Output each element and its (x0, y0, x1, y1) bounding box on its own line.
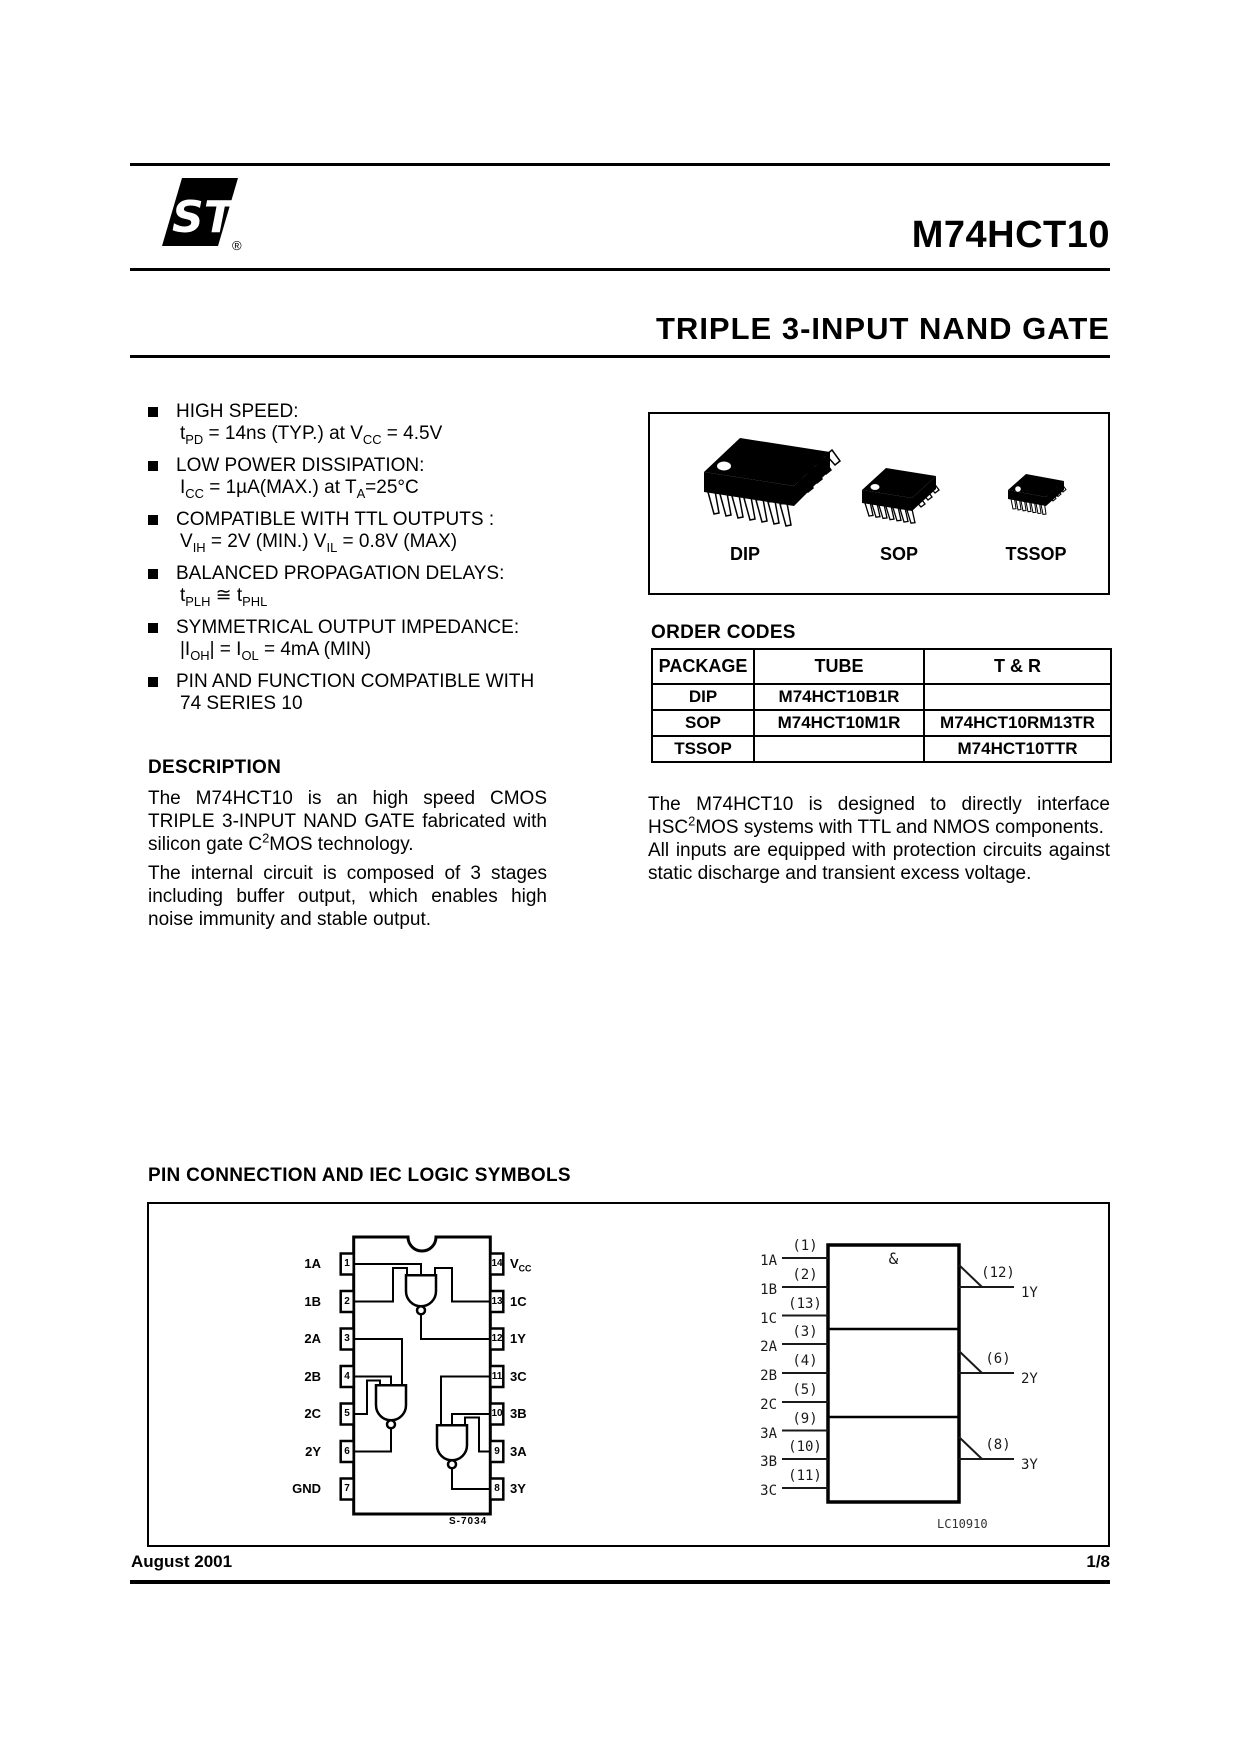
iec-output-pin: (6) (971, 1351, 1025, 1367)
iec-input-name: 1A (715, 1253, 777, 1269)
cell-tr: M74HCT10RM13TR (924, 710, 1111, 736)
col-header-package: PACKAGE (652, 649, 754, 684)
sop-package-label: SOP (854, 544, 944, 565)
iec-output-name: 3Y (1021, 1457, 1038, 1473)
dip-pin-number: 13 (490, 1296, 504, 1308)
iec-input-name: 1C (715, 1311, 777, 1327)
dip-package-image (678, 428, 848, 543)
description-paragraph: The internal circuit is composed of 3 st… (148, 862, 547, 931)
bullet-square-icon (148, 677, 158, 687)
feature-title: COMPATIBLE WITH TTL OUTPUTS : (176, 509, 552, 531)
cell-tr: M74HCT10TTR (924, 736, 1111, 762)
cell-tr (924, 684, 1111, 710)
tssop-package-image (998, 466, 1076, 528)
dip-pin-number: 1 (340, 1258, 354, 1270)
dip-pin-number: 2 (340, 1296, 354, 1308)
iec-input-pin: (4) (782, 1353, 828, 1369)
feature-detail: 74 SERIES 10 (176, 693, 552, 715)
iec-input-pin: (2) (782, 1267, 828, 1283)
dip-pin-number: 5 (340, 1408, 354, 1420)
feature-item: LOW POWER DISSIPATION: ICC = 1µA(MAX.) a… (148, 455, 552, 499)
registered-trademark: ® (232, 238, 242, 253)
iec-input-pin: (9) (782, 1411, 828, 1427)
iec-figure-caption: LC10910 (937, 1517, 988, 1531)
bullet-square-icon (148, 407, 158, 417)
dip-pin-number: 7 (340, 1483, 354, 1495)
sop-package-image (848, 458, 948, 536)
dip-pin-name: 3C (510, 1369, 582, 1385)
dip-pin-name: 3Y (510, 1481, 582, 1497)
col-header-tr: T & R (924, 649, 1111, 684)
dip-package-label: DIP (700, 544, 790, 565)
feature-detail: |IOH| = IOL = 4mA (MIN) (176, 639, 552, 661)
cell-tube (754, 736, 924, 762)
pin-connection-heading: PIN CONNECTION AND IEC LOGIC SYMBOLS (148, 1165, 571, 1187)
dip-pin-number: 3 (340, 1333, 354, 1345)
feature-title: BALANCED PROPAGATION DELAYS: (176, 563, 552, 585)
header-top-rule (130, 163, 1110, 166)
iec-input-name: 2B (715, 1368, 777, 1384)
iec-input-pin: (10) (782, 1439, 828, 1455)
dip-pin-number: 4 (340, 1371, 354, 1383)
dip-pin-name: 1B (249, 1294, 321, 1310)
tssop-package-label: TSSOP (991, 544, 1081, 565)
feature-detail: tPLH ≅ tPHL (176, 585, 552, 607)
order-codes-table: PACKAGE TUBE T & R DIP M74HCT10B1R SOP M… (651, 648, 1112, 763)
dip-pin-name: GND (249, 1481, 321, 1497)
dip-pin-number: 12 (490, 1333, 504, 1345)
dip-figure-caption: S-7034 (449, 1516, 487, 1527)
dip-pin-name: 2C (249, 1406, 321, 1422)
package-pictures-box: DIP SOP TSSOP (648, 412, 1110, 595)
iec-input-pin: (5) (782, 1382, 828, 1398)
feature-title: HIGH SPEED: (176, 401, 552, 423)
bullet-square-icon (148, 623, 158, 633)
feature-item: PIN AND FUNCTION COMPATIBLE WITH 74 SERI… (148, 671, 552, 715)
iec-input-name: 3B (715, 1454, 777, 1470)
dip-pin-name: 2B (249, 1369, 321, 1385)
iec-output-name: 1Y (1021, 1285, 1038, 1301)
feature-detail: ICC = 1µA(MAX.) at TA=25°C (176, 477, 552, 499)
cell-tube: M74HCT10B1R (754, 684, 924, 710)
dip-pin-number: 10 (490, 1408, 504, 1420)
iec-input-pin: (1) (782, 1238, 828, 1254)
dip-pin-name: 3A (510, 1444, 582, 1460)
dip-pin-name: 2Y (249, 1444, 321, 1460)
feature-detail: tPD = 14ns (TYP.) at VCC = 4.5V (176, 423, 552, 445)
st-logo: ST (146, 176, 238, 248)
col-header-tube: TUBE (754, 649, 924, 684)
order-codes-heading: ORDER CODES (651, 622, 796, 644)
feature-title: PIN AND FUNCTION COMPATIBLE WITH (176, 671, 552, 693)
dip-pin-number: 8 (490, 1483, 504, 1495)
features-list: HIGH SPEED: tPD = 14ns (TYP.) at VCC = 4… (148, 401, 552, 725)
iec-and-symbol: & (863, 1249, 924, 1268)
iec-input-name: 3C (715, 1483, 777, 1499)
cell-package: TSSOP (652, 736, 754, 762)
cell-tube: M74HCT10M1R (754, 710, 924, 736)
dip-pin-name: 1Y (510, 1331, 582, 1347)
iec-input-pin: (13) (782, 1296, 828, 1312)
iec-input-name: 2A (715, 1339, 777, 1355)
footer-page-number: 1/8 (1086, 1552, 1110, 1572)
description-paragraph: The M74HCT10 is an high speed CMOS TRIPL… (148, 787, 547, 856)
iec-input-name: 2C (715, 1397, 777, 1413)
footer-date: August 2001 (131, 1552, 232, 1572)
dip-pin-number: 6 (340, 1446, 354, 1458)
header-bottom-rule (130, 268, 1110, 271)
dip-pin-number: 9 (490, 1446, 504, 1458)
part-number: M74HCT10 (912, 214, 1110, 257)
feature-item: SYMMETRICAL OUTPUT IMPEDANCE: |IOH| = IO… (148, 617, 552, 661)
cell-package: SOP (652, 710, 754, 736)
table-row: DIP M74HCT10B1R (652, 684, 1111, 710)
cell-package: DIP (652, 684, 754, 710)
svg-text:ST: ST (172, 192, 237, 243)
iec-input-pin: (11) (782, 1468, 828, 1484)
dip-pin-name: 1C (510, 1294, 582, 1310)
feature-title: SYMMETRICAL OUTPUT IMPEDANCE: (176, 617, 552, 639)
table-row: SOP M74HCT10M1R M74HCT10RM13TR (652, 710, 1111, 736)
feature-detail: VIH = 2V (MIN.) VIL = 0.8V (MAX) (176, 531, 552, 553)
description-heading: DESCRIPTION (148, 757, 281, 779)
bullet-square-icon (148, 515, 158, 525)
interface-paragraph: The M74HCT10 is designed to directly int… (648, 793, 1110, 839)
feature-item: COMPATIBLE WITH TTL OUTPUTS : VIH = 2V (… (148, 509, 552, 553)
iec-output-pin: (12) (971, 1265, 1025, 1281)
interface-paragraph: All inputs are equipped with protection … (648, 839, 1110, 885)
iec-output-pin: (8) (971, 1437, 1025, 1453)
bullet-square-icon (148, 461, 158, 471)
pin-connection-figure: 1A 1B 2A 2B 2C 2Y GND VCC 1C 1Y 3C 3B 3A… (147, 1202, 1110, 1547)
dip-pin-name: 1A (249, 1256, 321, 1272)
interface-text: The M74HCT10 is designed to directly int… (648, 793, 1110, 885)
description-text: The M74HCT10 is an high speed CMOS TRIPL… (148, 787, 547, 937)
table-header-row: PACKAGE TUBE T & R (652, 649, 1111, 684)
dip-pin-number: 11 (490, 1371, 504, 1383)
dip-pin-name: 2A (249, 1331, 321, 1347)
table-row: TSSOP M74HCT10TTR (652, 736, 1111, 762)
feature-item: HIGH SPEED: tPD = 14ns (TYP.) at VCC = 4… (148, 401, 552, 445)
bullet-square-icon (148, 569, 158, 579)
page-title: TRIPLE 3-INPUT NAND GATE (656, 311, 1110, 347)
iec-input-name: 3A (715, 1426, 777, 1442)
feature-title: LOW POWER DISSIPATION: (176, 455, 552, 477)
feature-item: BALANCED PROPAGATION DELAYS: tPLH ≅ tPHL (148, 563, 552, 607)
dip-pin-name: 3B (510, 1406, 582, 1422)
iec-output-name: 2Y (1021, 1371, 1038, 1387)
dip-pin-number: 14 (490, 1258, 504, 1270)
datasheet-page: ST ® M74HCT10 TRIPLE 3-INPUT NAND GATE H… (0, 0, 1240, 1754)
dip-pin-name: VCC (510, 1256, 582, 1272)
title-underline-rule (130, 355, 1110, 358)
iec-input-pin: (3) (782, 1324, 828, 1340)
iec-input-name: 1B (715, 1282, 777, 1298)
footer-rule (130, 1580, 1110, 1584)
